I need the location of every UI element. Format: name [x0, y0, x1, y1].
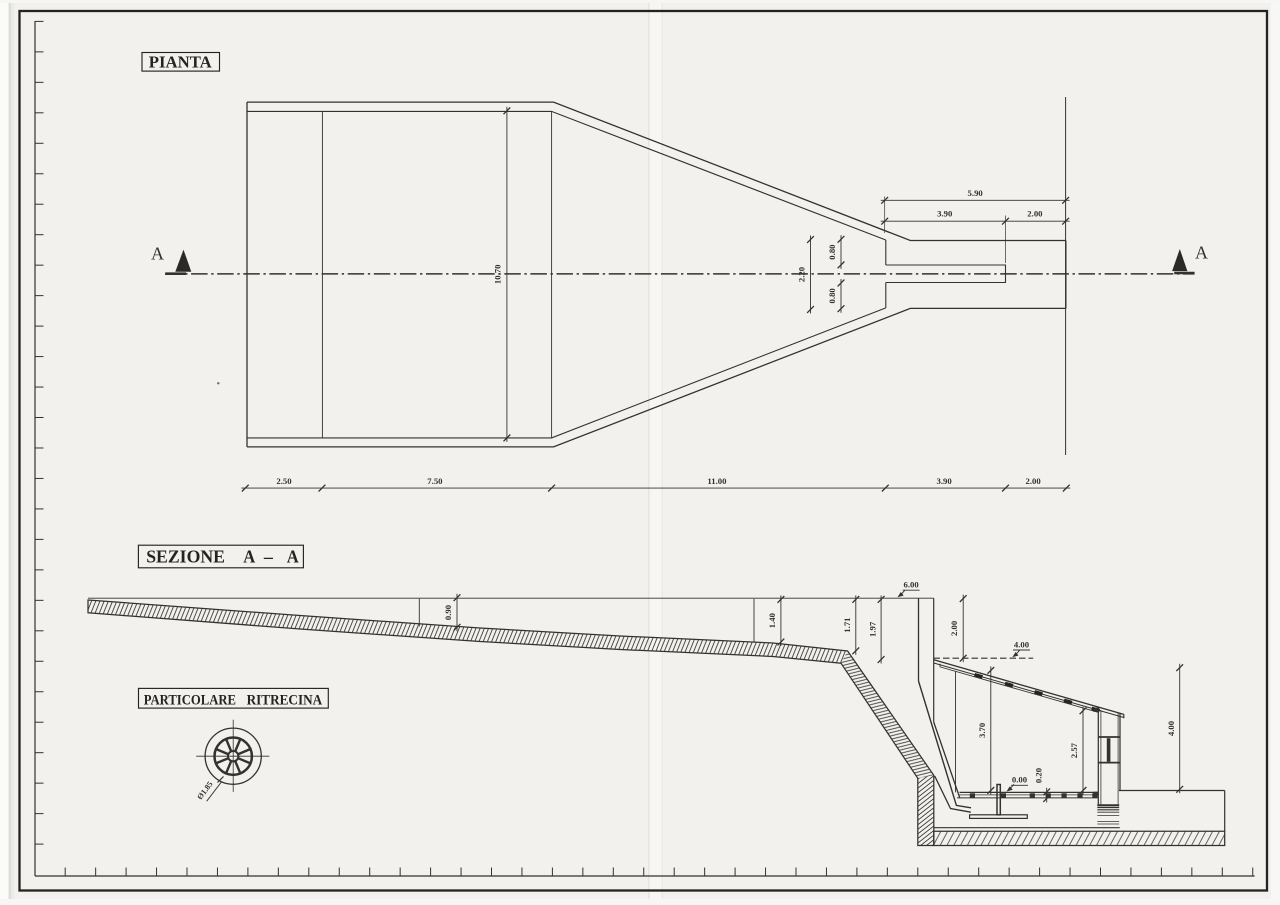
svg-text:11.00: 11.00 — [707, 476, 727, 486]
svg-text:A: A — [243, 546, 255, 566]
svg-text:4.00: 4.00 — [1014, 639, 1030, 649]
svg-text:0.80: 0.80 — [827, 244, 837, 260]
svg-text:A: A — [287, 546, 299, 566]
svg-text:RITRECINA: RITRECINA — [247, 693, 323, 709]
svg-text:PIANTA: PIANTA — [149, 53, 213, 72]
svg-text:SEZIONE: SEZIONE — [146, 546, 225, 566]
svg-text:A: A — [151, 244, 164, 264]
svg-text:4.00: 4.00 — [1166, 720, 1176, 736]
svg-text:2.57: 2.57 — [1069, 742, 1079, 758]
svg-text:0.80: 0.80 — [827, 288, 837, 304]
svg-text:3.70: 3.70 — [977, 722, 987, 738]
svg-text:2.50: 2.50 — [276, 476, 292, 486]
svg-text:7.50: 7.50 — [427, 476, 443, 486]
svg-text:0.20: 0.20 — [1033, 767, 1043, 783]
svg-text:0.00: 0.00 — [1012, 775, 1028, 785]
svg-text:PARTICOLARE: PARTICOLARE — [144, 693, 236, 709]
svg-text:1.97: 1.97 — [867, 621, 877, 637]
svg-text:1.71: 1.71 — [842, 617, 852, 632]
svg-text:A: A — [1195, 243, 1208, 263]
svg-text:–: – — [263, 546, 274, 566]
svg-text:0.90: 0.90 — [443, 604, 453, 620]
svg-text:3.90: 3.90 — [936, 476, 952, 486]
svg-text:5.90: 5.90 — [968, 188, 984, 198]
svg-text:2.00: 2.00 — [1025, 476, 1041, 486]
svg-text:1.40: 1.40 — [767, 612, 777, 628]
svg-text:6.00: 6.00 — [903, 580, 919, 590]
svg-text:3.90: 3.90 — [937, 209, 953, 219]
svg-text:2.20: 2.20 — [797, 266, 807, 282]
svg-text:2.00: 2.00 — [949, 620, 959, 636]
svg-text:2.00: 2.00 — [1027, 209, 1043, 219]
